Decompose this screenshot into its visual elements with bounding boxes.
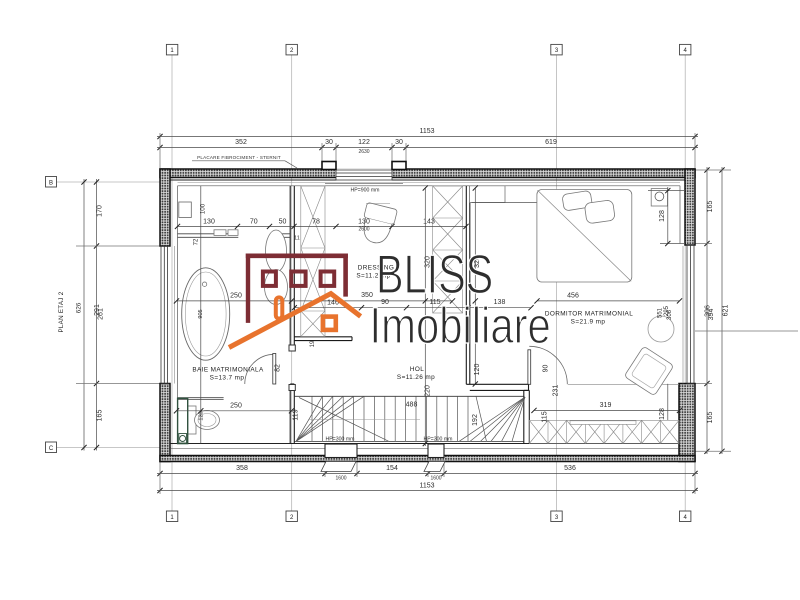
svg-text:551: 551 [658,307,664,318]
svg-text:394: 394 [708,309,715,321]
svg-text:30: 30 [325,139,333,146]
svg-text:B: B [49,181,53,187]
svg-text:HOL: HOL [410,366,424,373]
svg-text:250: 250 [230,292,242,299]
svg-text:619: 619 [545,139,557,146]
svg-text:1153: 1153 [419,128,434,135]
svg-text:11: 11 [294,236,300,242]
svg-text:C: C [49,446,54,452]
svg-text:19: 19 [310,340,316,347]
svg-text:DORMITOR MATRIMONIAL: DORMITOR MATRIMONIAL [545,311,633,318]
svg-text:S=13.7 mp: S=13.7 mp [210,375,245,382]
svg-text:319: 319 [600,402,612,409]
svg-text:626: 626 [76,302,83,313]
svg-text:165: 165 [707,412,714,424]
svg-text:170: 170 [97,205,104,217]
svg-text:BAIE MATRIMONIALA: BAIE MATRIMONIALA [192,367,264,374]
svg-text:1600: 1600 [430,476,441,482]
svg-text:128: 128 [659,408,666,420]
svg-text:488: 488 [406,402,418,409]
svg-text:130: 130 [203,218,215,225]
svg-text:90: 90 [543,365,550,373]
svg-text:120: 120 [199,411,205,420]
svg-text:78: 78 [312,218,320,225]
svg-text:115: 115 [542,411,549,422]
svg-text:154: 154 [386,465,398,472]
svg-text:250: 250 [230,403,242,410]
svg-text:261: 261 [98,308,105,320]
svg-text:PLACARE FIBROCIMENT - STERNIT: PLACARE FIBROCIMENT - STERNIT [197,155,281,160]
svg-text:130: 130 [358,218,370,225]
svg-text:2600: 2600 [358,227,369,233]
svg-text:PLAN ETAJ 2: PLAN ETAJ 2 [58,291,65,332]
svg-text:165: 165 [97,410,104,422]
svg-text:122: 122 [358,139,370,146]
svg-text:165: 165 [707,201,714,213]
svg-text:S=21.9 mp: S=21.9 mp [571,319,606,326]
svg-text:143: 143 [423,218,435,225]
svg-text:352: 352 [235,139,247,146]
svg-text:72: 72 [194,238,200,245]
svg-text:220: 220 [425,385,432,397]
svg-text:1600: 1600 [335,476,346,482]
svg-text:HP=900 mm: HP=900 mm [351,188,380,194]
svg-text:82: 82 [275,364,282,372]
svg-text:HP=300 mm: HP=300 mm [326,436,355,442]
svg-text:905: 905 [198,309,204,318]
svg-text:50: 50 [279,218,287,225]
svg-text:1153: 1153 [419,483,434,490]
svg-text:536: 536 [564,465,576,472]
svg-text:306: 306 [667,309,673,320]
svg-text:30: 30 [395,139,403,146]
svg-text:119: 119 [293,409,300,420]
svg-text:192: 192 [472,414,479,426]
svg-text:358: 358 [236,465,248,472]
svg-text:2630: 2630 [358,149,369,155]
svg-text:Imobiliare: Imobiliare [370,297,551,354]
svg-text:456: 456 [567,292,579,299]
svg-text:128: 128 [659,210,666,222]
svg-text:621: 621 [723,305,730,317]
svg-text:120: 120 [474,364,481,376]
svg-text:HP=300 mm: HP=300 mm [424,436,453,442]
svg-text:231: 231 [553,385,560,397]
svg-text:100: 100 [200,203,207,214]
svg-text:S=11.26 mp: S=11.26 mp [397,374,435,381]
svg-text:70: 70 [250,218,258,225]
